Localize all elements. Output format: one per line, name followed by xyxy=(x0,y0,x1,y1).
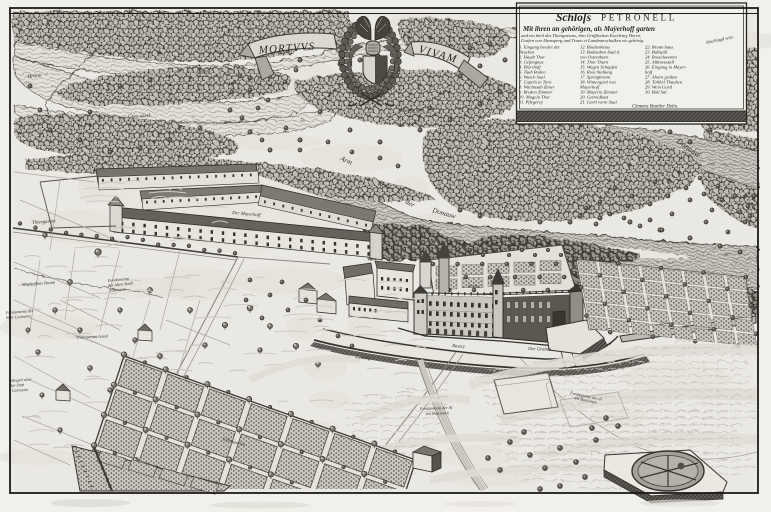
svg-text:Der Graben: Der Graben xyxy=(527,347,552,353)
svg-text:Gies wied: Gies wied xyxy=(128,113,150,120)
svg-text:Mit ihren an gehörigen, als Ma: Mit ihren an gehörigen, als Maÿerhoff ga… xyxy=(522,25,655,33)
svg-text:ten Bastionen: ten Bastionen xyxy=(426,410,449,416)
svg-text:30. Ball Sal: 30. Ball Sal xyxy=(645,90,667,95)
svg-text:Clemens Beuttler Delin.: Clemens Beuttler Delin. xyxy=(632,105,678,110)
svg-text:PETRONELL: PETRONELL xyxy=(601,13,677,23)
svg-text:11. Pflegerey: 11. Pflegerey xyxy=(519,100,544,105)
svg-text:Ablassgrund: Ablassgrund xyxy=(397,108,424,114)
svg-text:Bastey: Bastey xyxy=(452,344,466,350)
svg-text:Grafen von Abensperg und Traun: Grafen von Abensperg und Traun et Landma… xyxy=(521,38,644,43)
svg-text:21. Gartl vorm Saal: 21. Gartl vorm Saal xyxy=(580,100,617,105)
svg-text:Schlos: Schlos xyxy=(468,283,480,289)
